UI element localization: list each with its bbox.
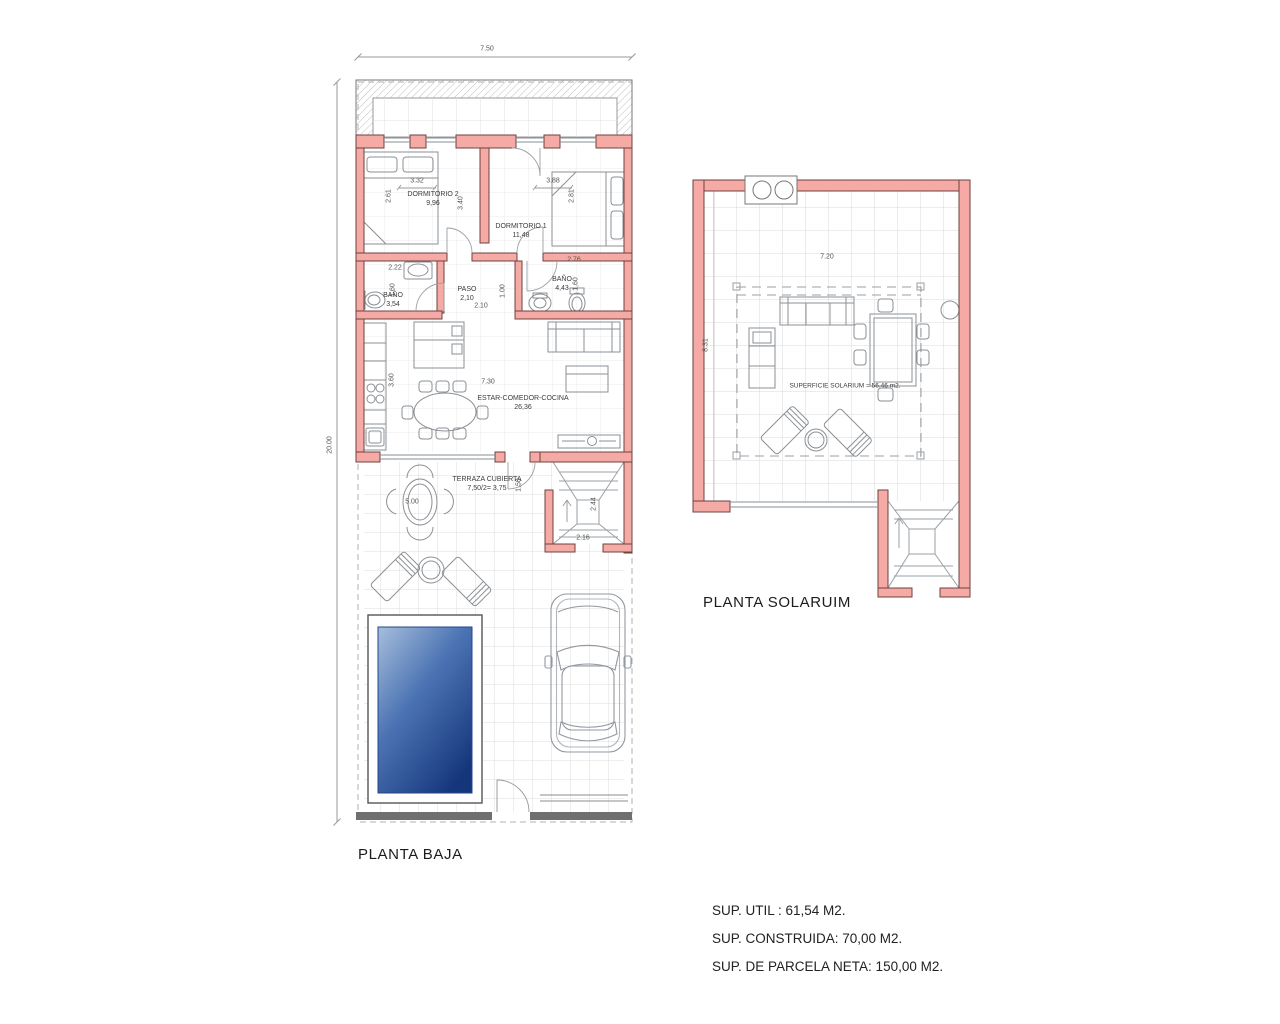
dim-label: 7.50 — [480, 46, 494, 53]
room-label-estar: ESTAR-COMEDOR-COCINA 26,36 — [477, 394, 568, 412]
ground-floor-title: PLANTA BAJA — [358, 846, 463, 863]
room-name: DORMITORIO 1 — [495, 222, 546, 231]
room-name: BAÑO — [552, 275, 572, 284]
vent-block — [745, 176, 797, 204]
room-label-bano1: BAÑO 3,54 — [383, 291, 403, 309]
solarium-title: PLANTA SOLARUIM — [703, 594, 851, 611]
room-area: 3,54 — [383, 300, 403, 309]
setback-band — [356, 80, 632, 137]
solarium-area-note: SUPERFICIE SOLARIUM = 56.46 m2. — [789, 383, 900, 390]
room-label-dormitorio2: DORMITORIO 2 9,96 — [407, 190, 458, 208]
dim-label: 2.76 — [567, 257, 581, 264]
swimming-pool — [368, 615, 482, 803]
room-area: 9,96 — [407, 199, 458, 208]
parapet-line — [730, 502, 878, 507]
summary-sup-parcela: SUP. DE PARCELA NETA: 150,00 M2. — [712, 959, 943, 974]
floor-plan-sheet: 7.50 20.00 3.32 2.61 3.40 3.88 2.81 2.22… — [0, 0, 1280, 1024]
dim-label: 2.61 — [386, 189, 393, 203]
room-name: PASO — [458, 285, 477, 294]
room-area: 2,10 — [458, 294, 477, 303]
dim-label: 3.88 — [546, 178, 560, 185]
dim-label: 2.10 — [474, 303, 488, 310]
room-name: TERRAZA CUBIERTA — [453, 475, 522, 484]
summary-sup-construida: SUP. CONSTRUIDA: 70,00 M2. — [712, 931, 902, 946]
summary-sup-util: SUP. UTIL : 61,54 M2. — [712, 903, 846, 918]
room-name: ESTAR-COMEDOR-COCINA — [477, 394, 568, 403]
dim-label: 2.81 — [569, 189, 576, 203]
dim-label: 2.44 — [591, 497, 598, 511]
staircase — [553, 462, 624, 544]
dim-label: 3.32 — [410, 178, 424, 185]
room-label-paso: PASO 2,10 — [458, 285, 477, 303]
room-area: 7,50/2= 3,75 — [453, 484, 522, 493]
dim-label: 1,60 — [573, 277, 580, 291]
room-label-bano2: BAÑO 4,43 — [552, 275, 572, 293]
dim-label: 2.22 — [388, 265, 402, 272]
room-name: BAÑO — [383, 291, 403, 300]
dim-label: 7.20 — [820, 254, 834, 261]
staircase — [888, 501, 959, 588]
room-area: 26,36 — [477, 403, 568, 412]
room-label-dormitorio1: DORMITORIO 1 11,48 — [495, 222, 546, 240]
room-label-terraza: TERRAZA CUBIERTA 7,50/2= 3,75 — [453, 475, 522, 493]
dim-label: 20.00 — [327, 436, 334, 454]
floor-plan-drawing — [0, 0, 1280, 1024]
dim-label: 8.31 — [703, 338, 710, 352]
dim-label: 1.00 — [500, 284, 507, 298]
dim-label: 3.60 — [389, 373, 396, 387]
dim-label: 2.16 — [576, 535, 590, 542]
room-name: DORMITORIO 2 — [407, 190, 458, 199]
dim-label: 5.00 — [405, 499, 419, 506]
room-area: 11,48 — [495, 231, 546, 240]
room-area: 4,43 — [552, 284, 572, 293]
dim-label: 7.30 — [481, 379, 495, 386]
